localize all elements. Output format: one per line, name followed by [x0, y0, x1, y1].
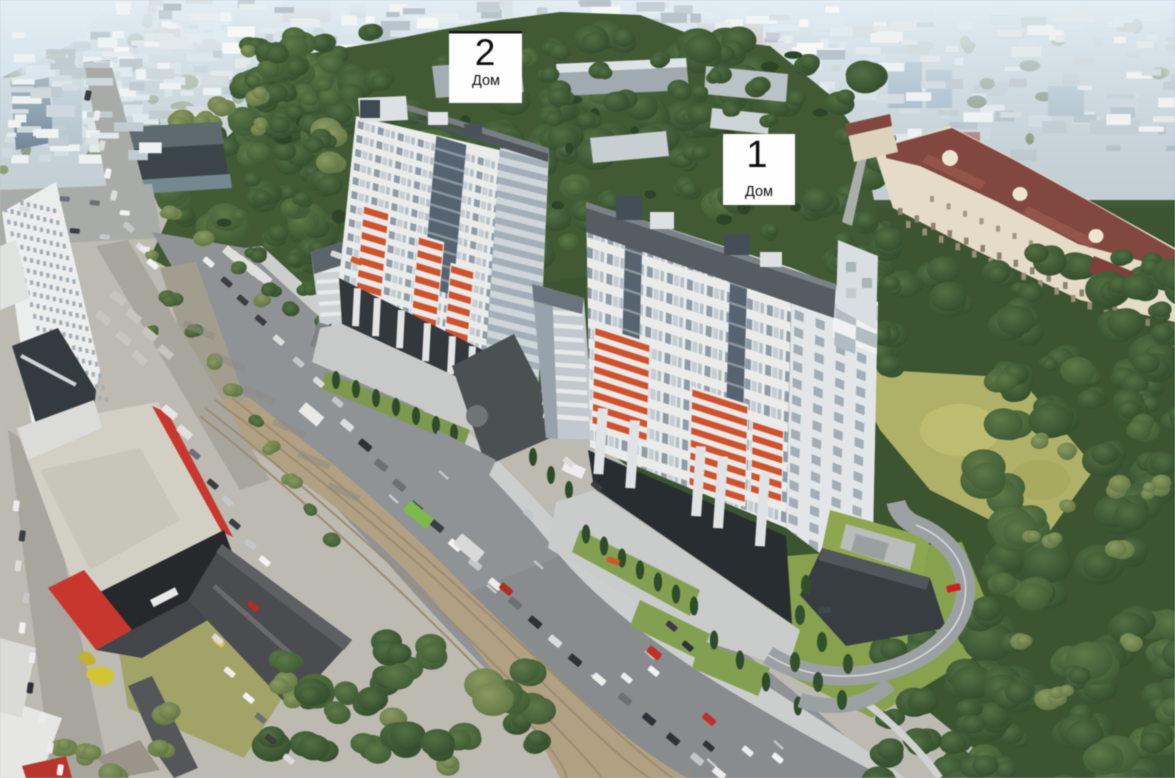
- svg-text:2: 2: [475, 32, 496, 73]
- svg-text:Дом: Дом: [472, 73, 500, 89]
- svg-text:Дом: Дом: [745, 184, 773, 200]
- svg-text:1: 1: [746, 134, 767, 176]
